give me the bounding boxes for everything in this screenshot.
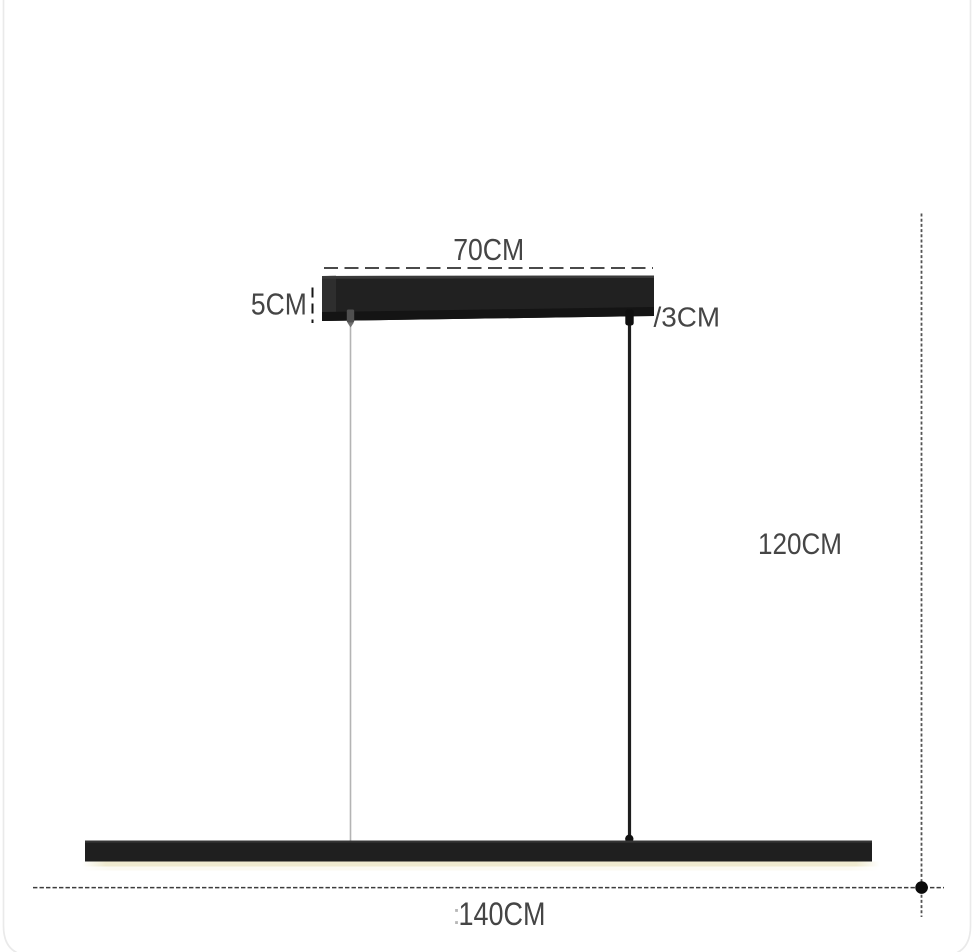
svg-text:120CM: 120CM bbox=[758, 528, 842, 561]
svg-text:5CM: 5CM bbox=[251, 287, 307, 321]
svg-text::: : bbox=[453, 899, 461, 931]
svg-text:/3CM: /3CM bbox=[654, 302, 721, 333]
svg-text:140CM: 140CM bbox=[459, 896, 546, 932]
svg-text:70CM: 70CM bbox=[453, 233, 524, 267]
